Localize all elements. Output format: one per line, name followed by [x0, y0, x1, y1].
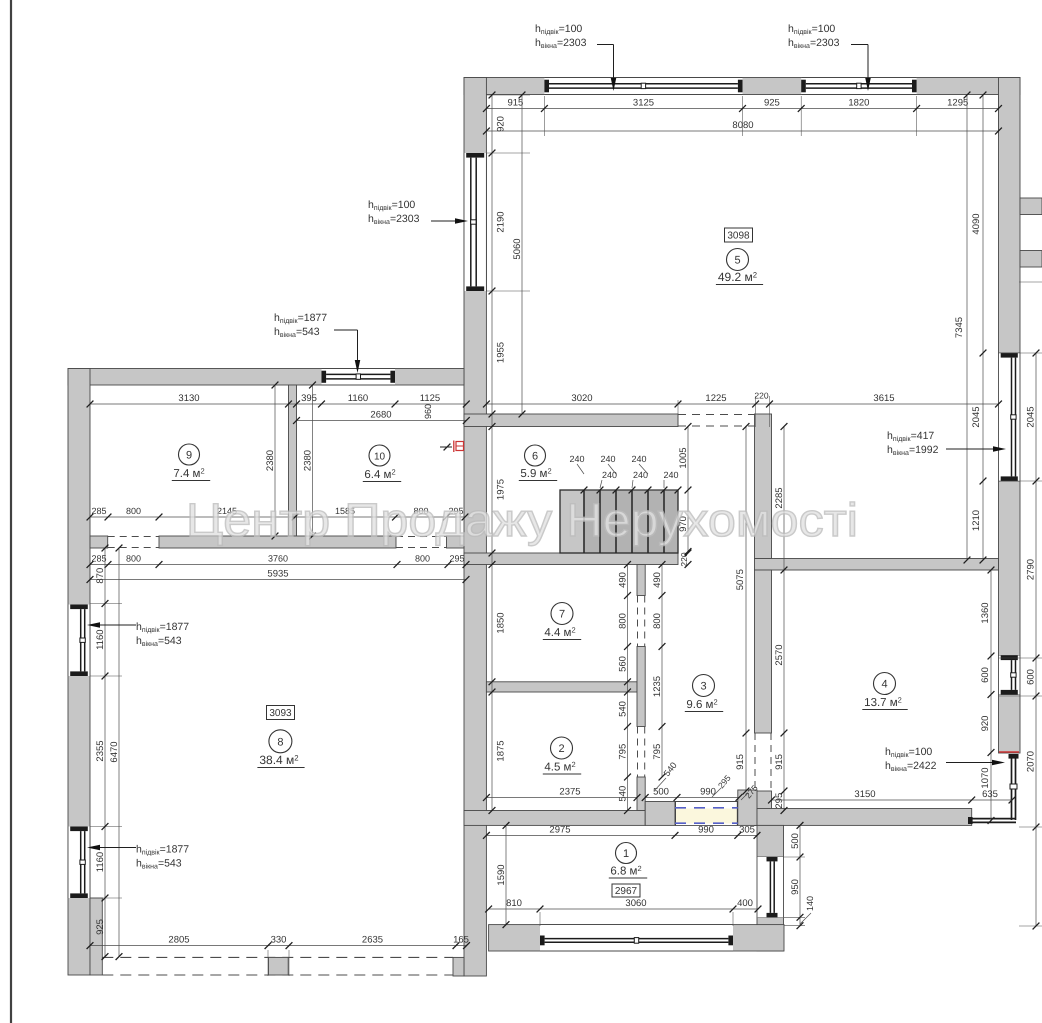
- svg-text:2380: 2380: [303, 450, 314, 471]
- svg-text:1590: 1590: [496, 864, 507, 885]
- svg-text:490: 490: [652, 572, 663, 588]
- svg-text:1210: 1210: [971, 510, 982, 531]
- svg-text:3150: 3150: [854, 789, 875, 800]
- svg-text:950: 950: [790, 879, 801, 895]
- svg-text:490: 490: [618, 572, 629, 588]
- svg-text:5: 5: [734, 255, 740, 267]
- svg-text:220: 220: [754, 391, 768, 401]
- svg-text:5060: 5060: [512, 238, 523, 259]
- svg-text:4090: 4090: [971, 213, 982, 234]
- svg-text:6.8 м2: 6.8 м2: [610, 864, 641, 878]
- svg-text:5.9 м2: 5.9 м2: [520, 467, 551, 481]
- svg-text:3130: 3130: [178, 393, 199, 404]
- svg-text:240: 240: [663, 470, 678, 480]
- svg-text:800: 800: [126, 554, 141, 564]
- svg-text:1820: 1820: [848, 98, 869, 109]
- svg-text:4.4 м2: 4.4 м2: [544, 626, 575, 640]
- svg-text:6470: 6470: [109, 741, 120, 762]
- svg-text:3020: 3020: [571, 393, 592, 404]
- svg-text:240: 240: [631, 454, 646, 464]
- svg-text:2975: 2975: [549, 824, 570, 835]
- svg-text:240: 240: [569, 454, 584, 464]
- svg-text:2635: 2635: [362, 935, 383, 946]
- svg-text:3125: 3125: [633, 98, 654, 109]
- svg-text:1235: 1235: [652, 676, 663, 697]
- svg-text:915: 915: [735, 754, 746, 770]
- svg-text:1070: 1070: [980, 767, 991, 788]
- svg-text:2375: 2375: [559, 787, 580, 798]
- svg-text:9: 9: [186, 450, 192, 462]
- svg-text:2045: 2045: [971, 406, 982, 427]
- svg-text:2380: 2380: [265, 450, 276, 471]
- svg-text:2967: 2967: [615, 886, 638, 897]
- svg-text:920: 920: [980, 716, 991, 732]
- svg-text:1160: 1160: [95, 852, 106, 872]
- svg-text:395: 395: [301, 393, 317, 404]
- svg-text:2355: 2355: [95, 740, 106, 761]
- svg-text:3615: 3615: [873, 393, 894, 404]
- svg-text:305: 305: [739, 824, 755, 835]
- svg-text:295: 295: [449, 554, 464, 564]
- svg-text:915: 915: [774, 754, 785, 770]
- svg-text:920: 920: [496, 116, 507, 132]
- svg-text:7.4 м2: 7.4 м2: [173, 467, 204, 481]
- svg-text:5075: 5075: [735, 569, 746, 590]
- svg-text:1160: 1160: [95, 629, 106, 649]
- svg-text:1225: 1225: [705, 393, 726, 404]
- svg-text:1125: 1125: [420, 393, 440, 404]
- svg-text:1295: 1295: [947, 98, 968, 109]
- svg-text:8: 8: [277, 736, 283, 748]
- svg-text:285: 285: [91, 554, 106, 564]
- svg-text:635: 635: [982, 789, 998, 800]
- svg-text:3098: 3098: [727, 231, 750, 242]
- svg-text:7: 7: [559, 609, 565, 621]
- svg-text:6.4 м2: 6.4 м2: [364, 468, 395, 482]
- svg-text:3: 3: [700, 681, 706, 693]
- svg-text:165: 165: [453, 935, 469, 946]
- svg-text:330: 330: [271, 935, 287, 946]
- svg-text:49.2 м2: 49.2 м2: [718, 270, 757, 284]
- svg-text:3093: 3093: [269, 708, 292, 719]
- svg-text:2790: 2790: [1026, 559, 1037, 580]
- svg-text:Центр Продажу Нерухомості: Центр Продажу Нерухомості: [186, 493, 858, 546]
- svg-text:500: 500: [653, 787, 669, 798]
- svg-text:10: 10: [374, 452, 386, 463]
- svg-text:560: 560: [618, 656, 629, 672]
- svg-text:600: 600: [980, 667, 991, 683]
- svg-text:500: 500: [790, 833, 801, 849]
- svg-text:2805: 2805: [168, 935, 189, 946]
- svg-text:8080: 8080: [732, 120, 753, 131]
- svg-text:2570: 2570: [774, 644, 785, 665]
- svg-text:540: 540: [618, 786, 629, 802]
- svg-text:915: 915: [507, 98, 523, 109]
- svg-text:540: 540: [618, 701, 629, 717]
- svg-text:9.6 м2: 9.6 м2: [686, 698, 717, 712]
- svg-text:2680: 2680: [370, 410, 391, 421]
- svg-text:285: 285: [91, 506, 106, 516]
- svg-text:295: 295: [774, 793, 785, 809]
- svg-text:1005: 1005: [678, 447, 689, 468]
- svg-text:795: 795: [652, 744, 663, 760]
- svg-text:6: 6: [532, 451, 538, 463]
- svg-text:1360: 1360: [980, 602, 991, 623]
- svg-text:990: 990: [698, 824, 714, 835]
- svg-text:925: 925: [764, 98, 780, 109]
- svg-text:960: 960: [423, 404, 433, 419]
- svg-text:3060: 3060: [625, 898, 646, 909]
- svg-text:1: 1: [623, 848, 629, 860]
- svg-text:1875: 1875: [496, 740, 507, 761]
- svg-text:38.4 м2: 38.4 м2: [259, 753, 298, 767]
- svg-text:13.7 м2: 13.7 м2: [864, 696, 902, 710]
- svg-text:4.5 м2: 4.5 м2: [544, 760, 575, 774]
- svg-text:810: 810: [506, 898, 522, 909]
- svg-text:1160: 1160: [348, 393, 368, 404]
- svg-text:800: 800: [126, 506, 141, 516]
- svg-text:400: 400: [737, 898, 753, 909]
- svg-text:925: 925: [95, 919, 106, 935]
- svg-text:3760: 3760: [268, 554, 288, 564]
- svg-text:600: 600: [1026, 669, 1037, 685]
- svg-text:7345: 7345: [954, 317, 965, 338]
- svg-text:5935: 5935: [267, 569, 288, 580]
- svg-text:2045: 2045: [1026, 406, 1037, 427]
- svg-text:800: 800: [618, 613, 629, 629]
- svg-text:870: 870: [95, 568, 106, 584]
- svg-text:2: 2: [558, 743, 564, 755]
- svg-text:140: 140: [805, 896, 815, 911]
- svg-text:800: 800: [652, 613, 663, 629]
- svg-text:240: 240: [602, 470, 617, 480]
- svg-text:4: 4: [881, 679, 887, 691]
- svg-text:2190: 2190: [496, 211, 507, 232]
- svg-text:2070: 2070: [1026, 751, 1037, 772]
- svg-text:800: 800: [415, 554, 430, 564]
- svg-text:1850: 1850: [496, 612, 507, 633]
- svg-text:1955: 1955: [496, 342, 507, 363]
- svg-text:795: 795: [618, 744, 629, 760]
- svg-text:240: 240: [600, 454, 615, 464]
